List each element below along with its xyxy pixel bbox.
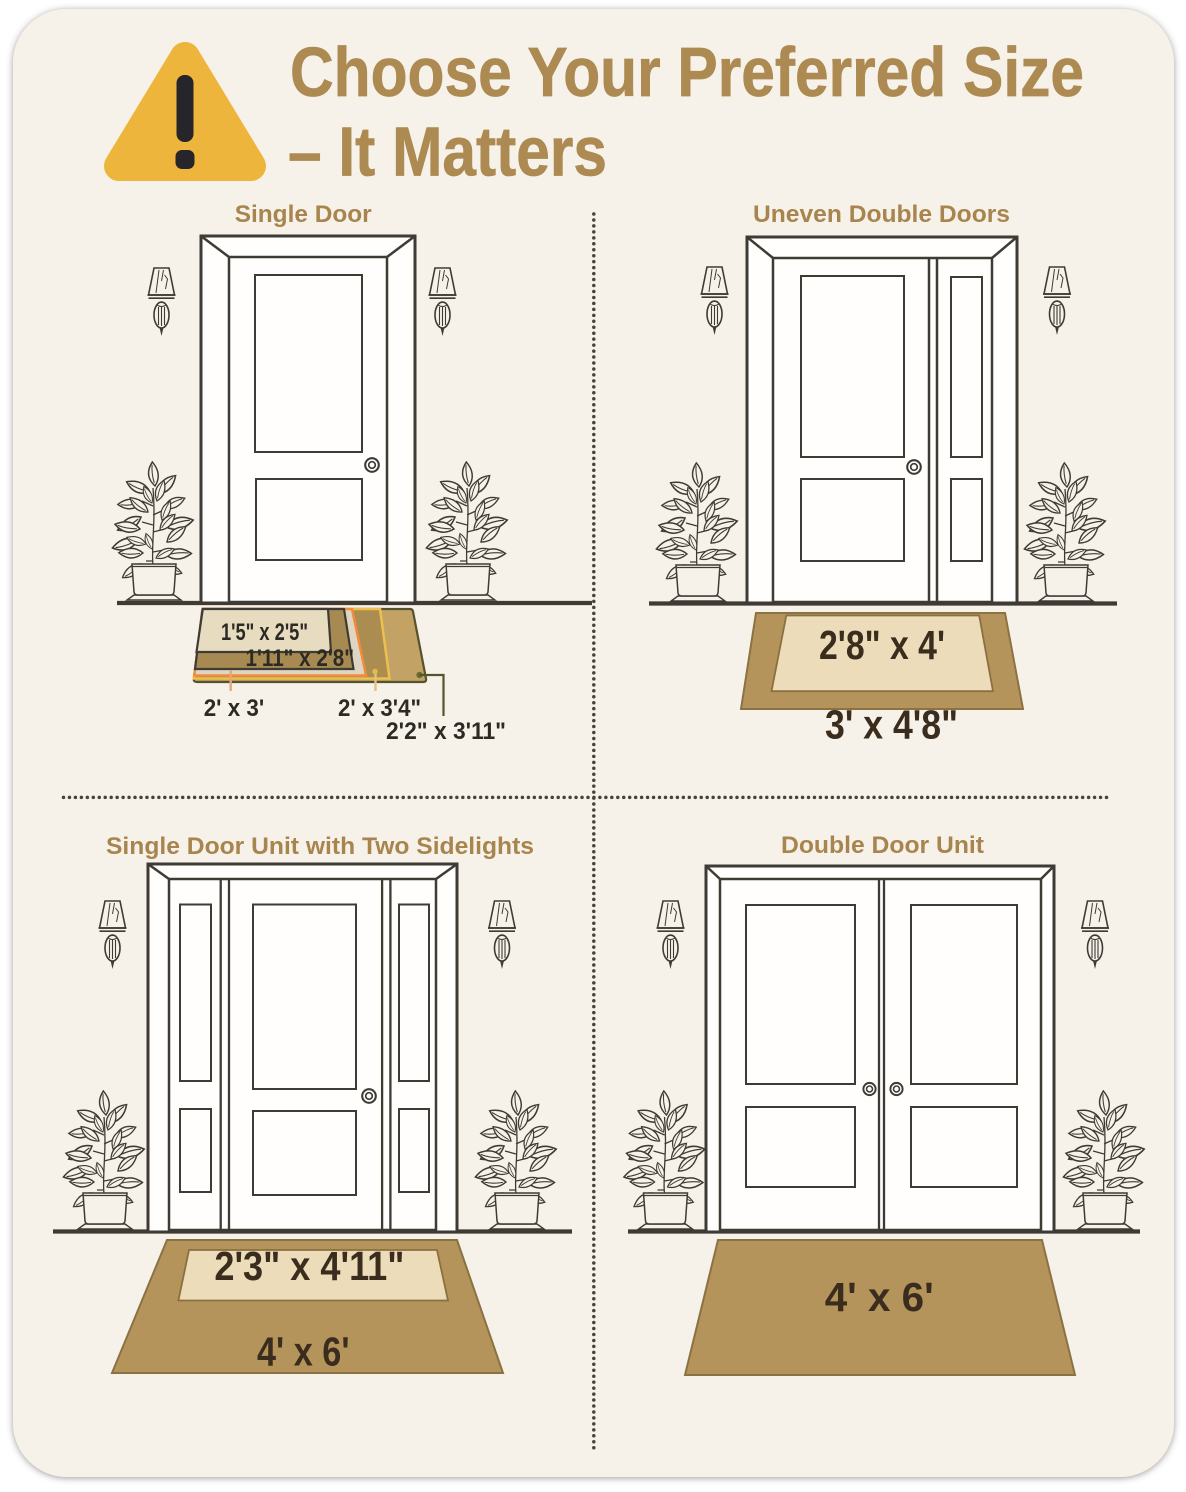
svg-text:4' x 6': 4' x 6' [825,1274,934,1320]
svg-text:Double Door Unit: Double Door Unit [781,832,984,859]
svg-text:1'5" x 2'5": 1'5" x 2'5" [221,619,308,646]
svg-text:2'3" x 4'11": 2'3" x 4'11" [214,1243,404,1289]
svg-text:Choose Your Preferred Size: Choose Your Preferred Size [290,33,1084,111]
svg-text:2'2" x 3'11": 2'2" x 3'11" [386,718,506,745]
svg-text:Single Door Unit with Two Side: Single Door Unit with Two Sidelights [106,833,534,860]
svg-text:2'8" x 4': 2'8" x 4' [819,622,945,668]
svg-text:2' x 3': 2' x 3' [204,695,265,722]
svg-text:Uneven Double Doors: Uneven Double Doors [753,201,1010,228]
svg-text:4' x 6': 4' x 6' [257,1329,350,1375]
svg-text:Single Door: Single Door [235,201,372,228]
svg-text:– It Matters: – It Matters [288,113,607,191]
svg-text:3' x 4'8": 3' x 4'8" [825,702,958,748]
svg-text:1'11" x 2'8": 1'11" x 2'8" [246,645,355,672]
